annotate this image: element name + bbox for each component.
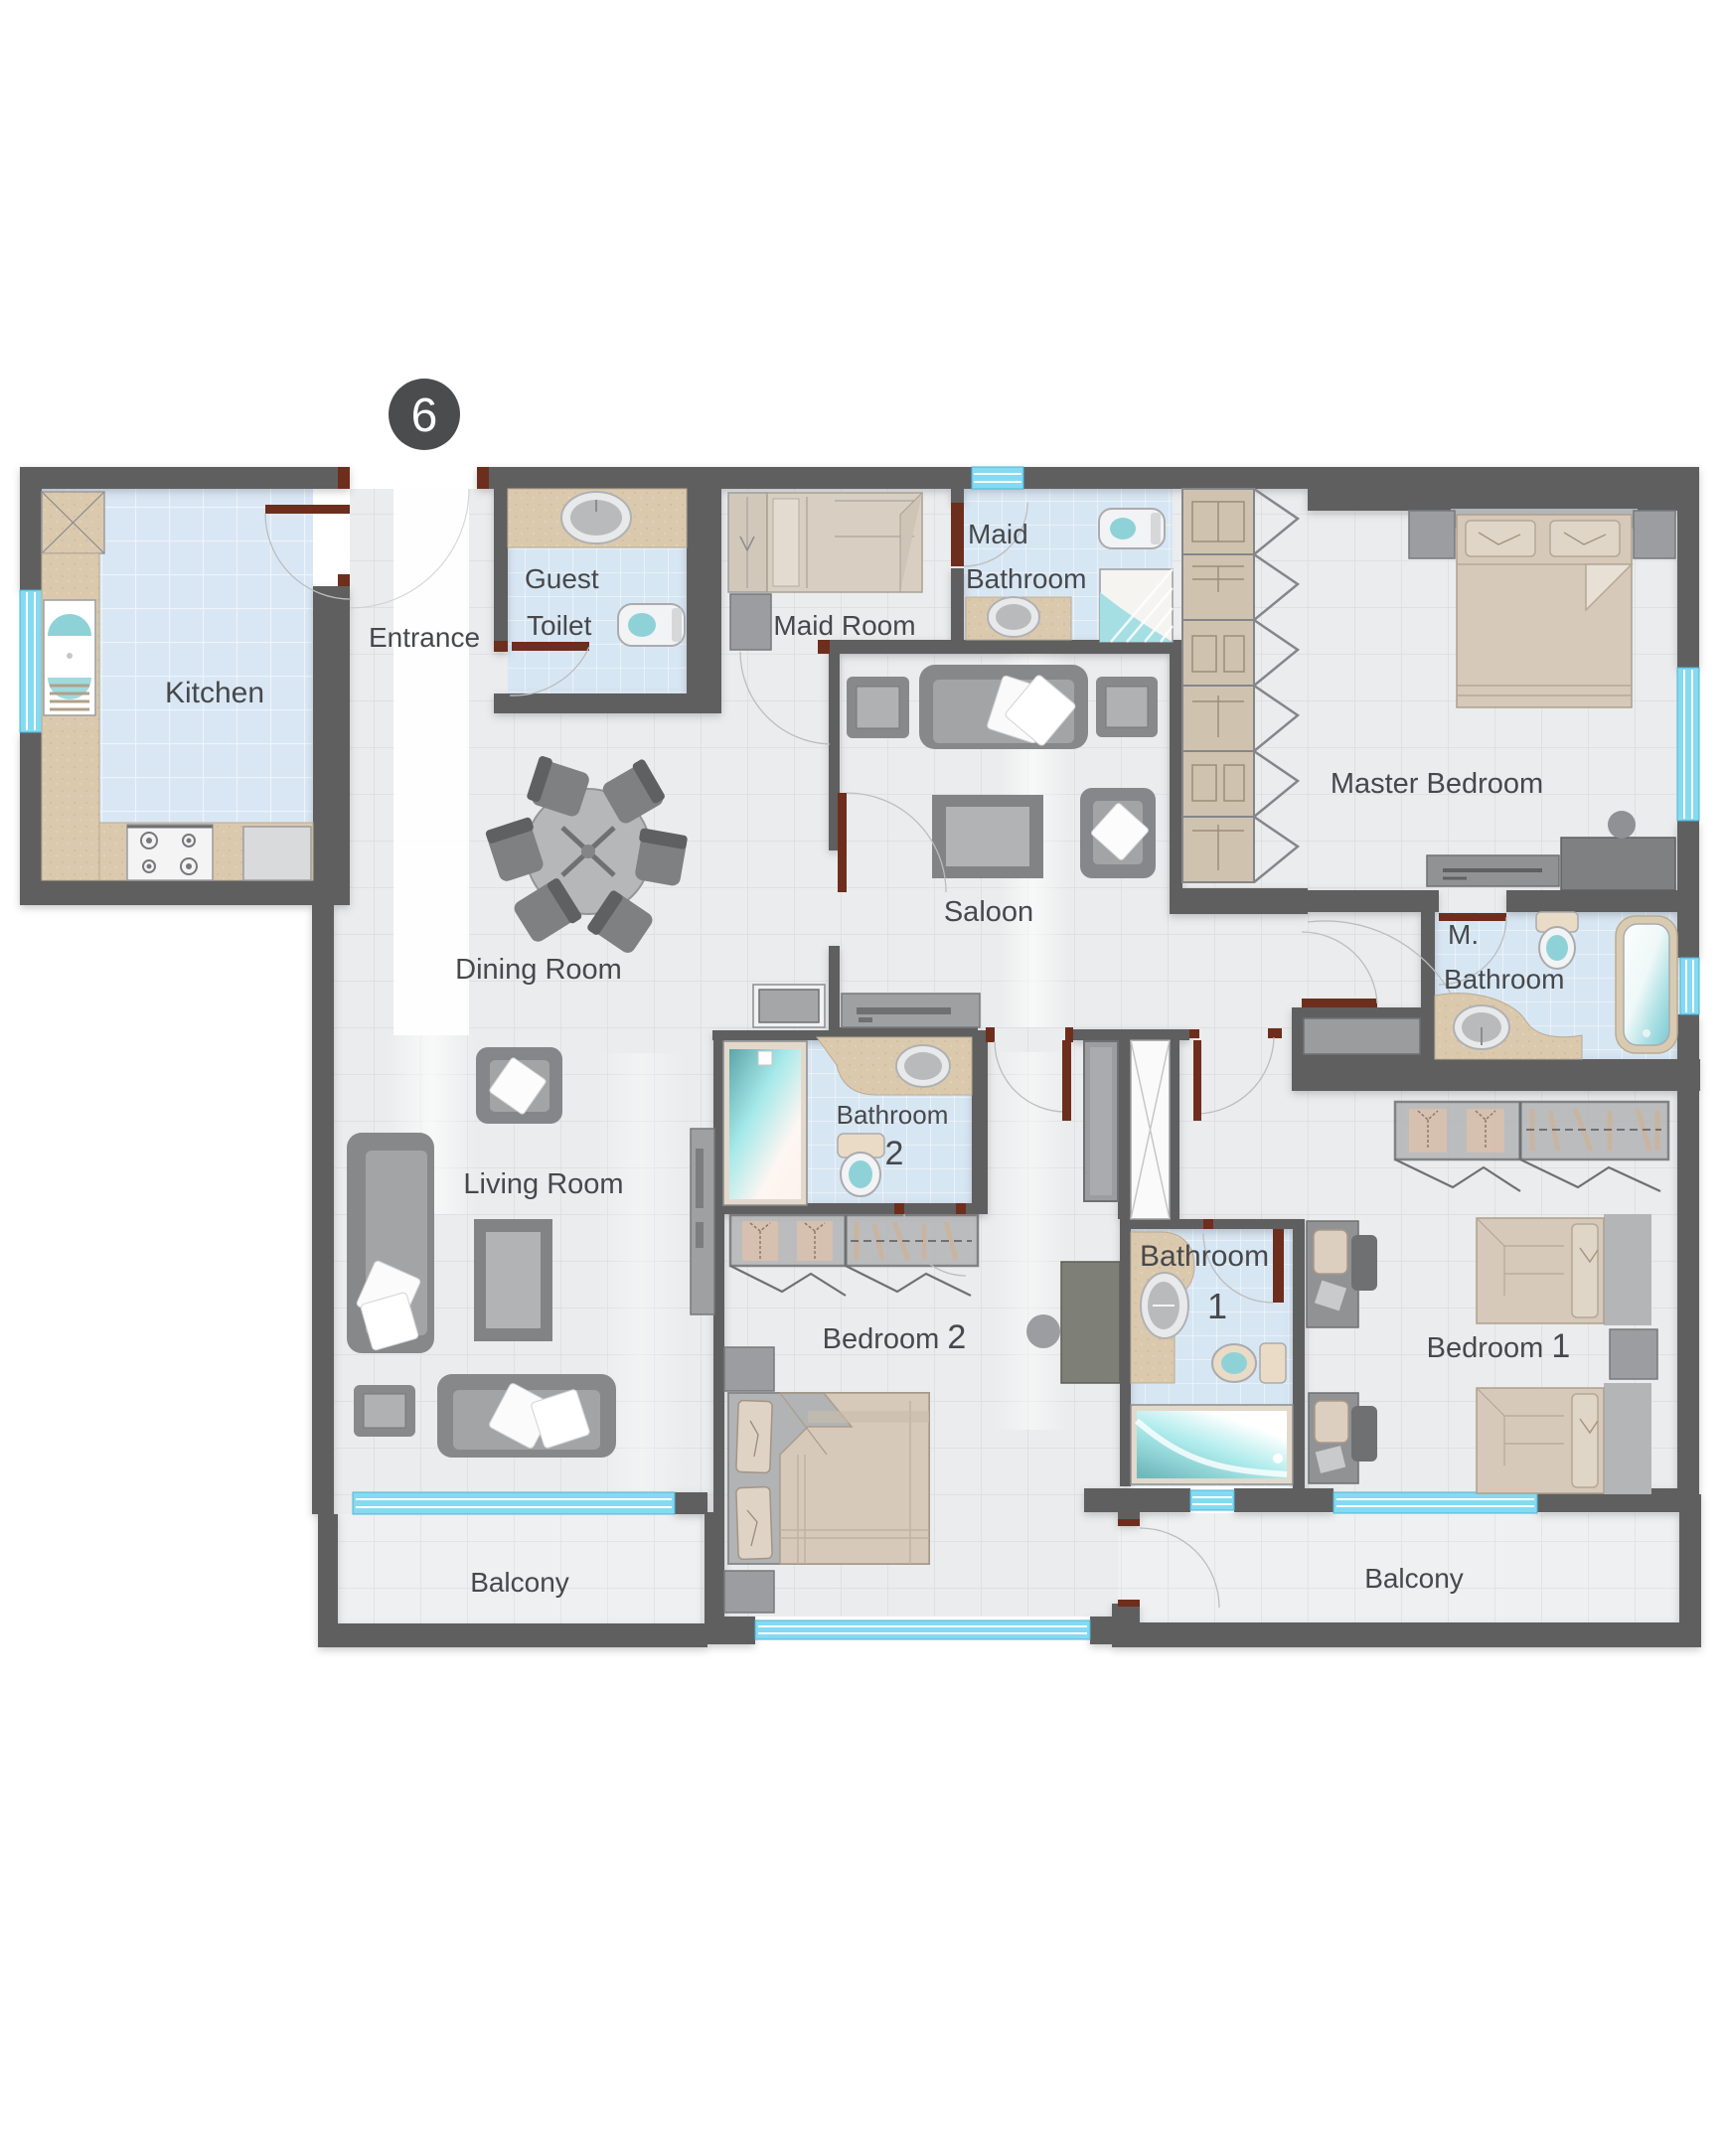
svg-text:Maid: Maid — [968, 519, 1028, 549]
svg-text:Bedroom 1: Bedroom 1 — [1427, 1327, 1571, 1365]
svg-text:Maid Room: Maid Room — [773, 610, 915, 641]
svg-text:Balcony: Balcony — [470, 1567, 569, 1598]
svg-text:Bathroom: Bathroom — [1140, 1240, 1269, 1273]
svg-text:6: 6 — [411, 389, 438, 442]
svg-text:M.: M. — [1448, 919, 1479, 950]
svg-text:Guest: Guest — [525, 563, 599, 594]
svg-text:Bathroom: Bathroom — [966, 563, 1086, 594]
svg-text:Kitchen: Kitchen — [165, 677, 264, 709]
svg-text:Bedroom 2: Bedroom 2 — [823, 1318, 967, 1356]
svg-text:Living Room: Living Room — [463, 1168, 623, 1200]
svg-text:Balcony: Balcony — [1364, 1563, 1464, 1594]
svg-text:Entrance: Entrance — [369, 622, 480, 653]
svg-text:Bathroom: Bathroom — [1444, 964, 1564, 995]
svg-text:Toilet: Toilet — [527, 610, 592, 641]
svg-text:Saloon: Saloon — [944, 896, 1033, 928]
svg-text:Dining Room: Dining Room — [455, 954, 622, 986]
svg-text:2: 2 — [885, 1135, 904, 1172]
svg-text:Bathroom: Bathroom — [837, 1100, 949, 1130]
svg-text:Master Bedroom: Master Bedroom — [1331, 768, 1543, 800]
svg-text:1: 1 — [1207, 1286, 1227, 1326]
